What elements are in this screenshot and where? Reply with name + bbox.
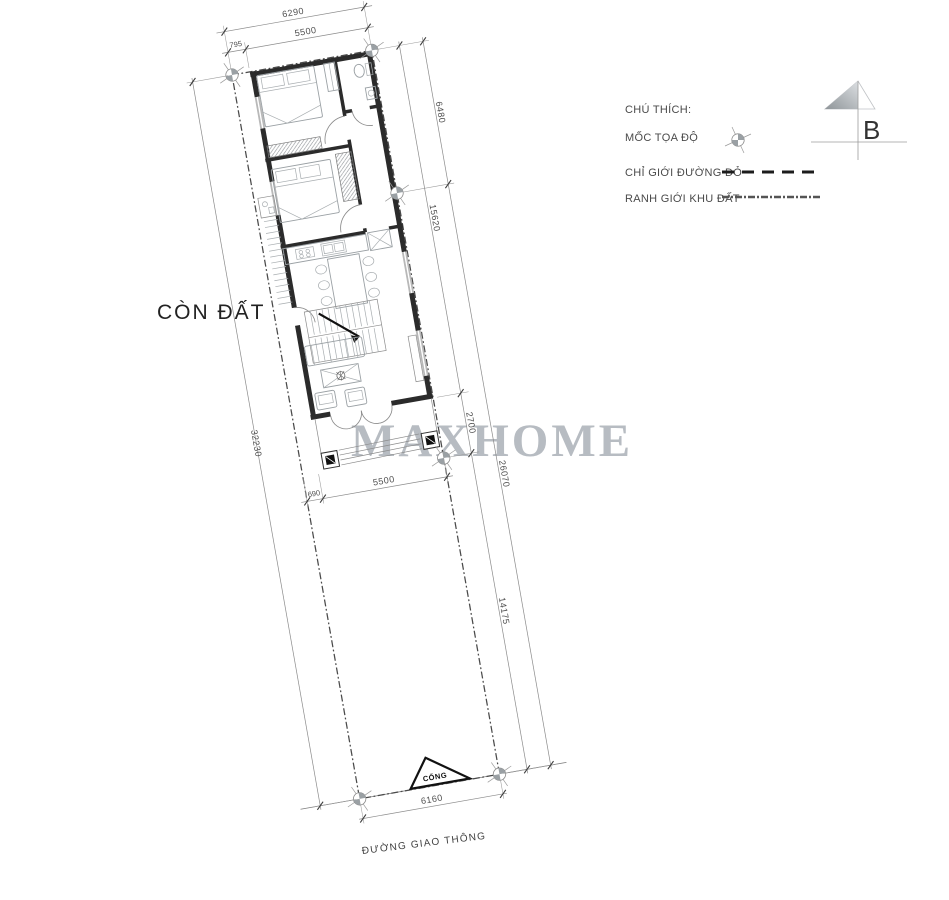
lot-boundary [232,50,499,798]
bedroom-1-bed [257,66,323,127]
red-boundary-line-icon [722,168,822,176]
house-floor-plan [236,50,436,437]
dining-set [314,251,381,310]
remaining-land-label: CÒN ĐẤT [157,301,266,325]
dim-gate-width: 6160 [420,792,443,806]
rotated-site-plan: CỔNG [163,0,571,834]
wardrobe-bedroom2 [335,151,359,201]
dim-porch-setback-left: 690 [307,488,321,499]
staircase [304,299,386,363]
survey-marker-icon [484,759,514,789]
site-boundary-line-icon [722,193,822,201]
survey-marker-icon [217,60,247,90]
dim-house-width-top: 5500 [294,25,317,39]
legend-title: CHÚ THÍCH: [625,104,691,116]
dim-lot-length-left: 32230 [249,429,264,458]
bedroom2-door-arc [337,205,365,233]
dim-setback-left-top: 795 [229,39,243,50]
entrance-doors [331,405,395,431]
porch-column [321,451,340,470]
sofa-set [304,337,373,413]
armchair [344,387,367,407]
armchair [315,390,338,410]
bedroom1-door-arc [321,116,349,144]
porch-column [421,431,440,450]
gate-triangle: CỔNG [406,751,470,789]
dim-right-segment-upper: 6480 [434,101,448,124]
bedroom-2-bed [271,159,339,223]
north-arrow: B [805,68,915,168]
dim-porch-depth: 2700 [464,411,478,434]
survey-marker-icon [720,124,756,156]
legend-item-survey-marker: MỐC TỌA ĐỘ [625,132,698,144]
dim-lot-width-top: 6290 [281,6,304,20]
dimension-lines: 6290 795 5500 15620 2700 14175 6480 2607… [177,0,565,831]
site-plan-drawing: { "drawing": { "watermark": "MAXHOME", "… [0,0,949,900]
survey-marker-icon [345,784,375,814]
kitchen-counter [283,229,392,265]
porch [315,398,440,469]
bath-door-arc [352,108,373,129]
dim-porch-width: 5500 [372,474,395,488]
north-label: B [863,115,880,145]
